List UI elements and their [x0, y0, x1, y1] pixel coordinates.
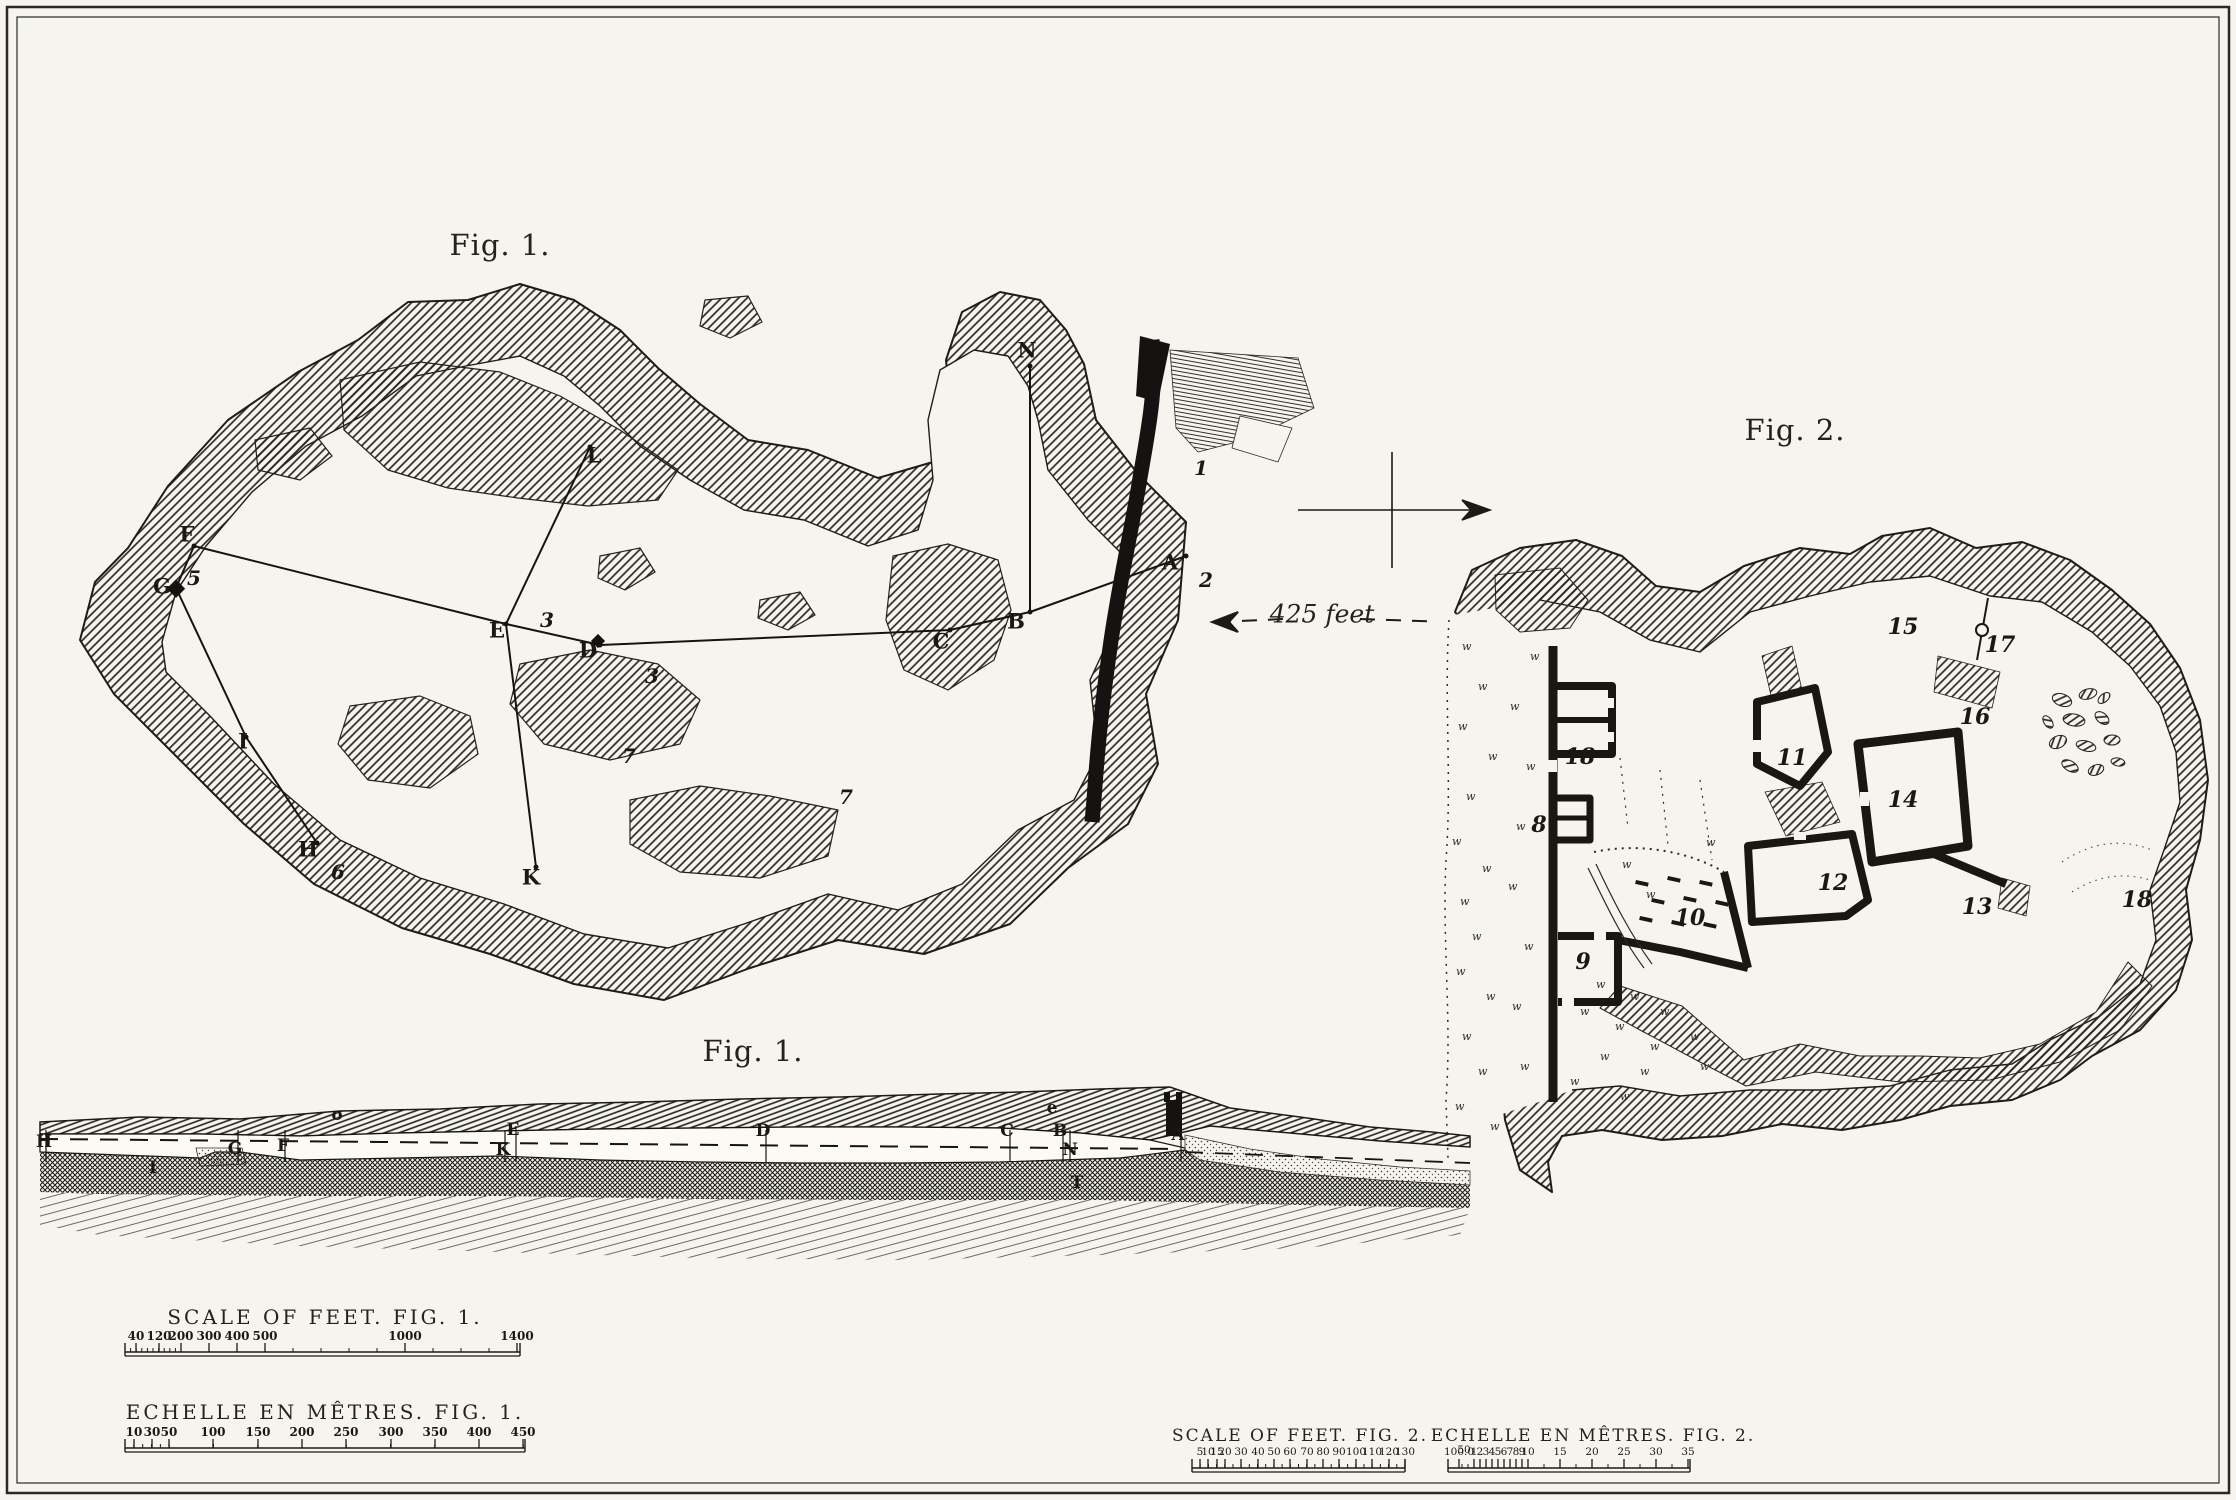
fig1-station-label: B	[1007, 609, 1025, 634]
plate-artwork: wwwwwwwwwwwwwwwwwwwwwwwwwwwwwwwwwwwwww	[0, 0, 2236, 1500]
scale-tick-label: 300	[196, 1329, 221, 1343]
vegetation-tuft-icon: w	[1458, 720, 1468, 733]
vegetation-tuft-icon: w	[1516, 820, 1526, 833]
fig2-plan-art: wwwwwwwwwwwwwwwwwwwwwwwwwwwwwwwwwwwwww	[1436, 528, 2208, 1192]
section-label: F	[277, 1136, 289, 1156]
scale-tick-label: 15	[1553, 1446, 1566, 1458]
vegetation-tuft-icon: w	[1646, 888, 1656, 901]
scale-tick-label: 1000	[388, 1329, 421, 1343]
scale-tick-label: 60	[1283, 1446, 1296, 1458]
fig2-room-number: 12	[1818, 870, 1849, 896]
scale-tick-label: 400	[224, 1329, 249, 1343]
scale-tick-label: 90	[1332, 1446, 1345, 1458]
vegetation-tuft-icon: w	[1640, 1065, 1650, 1078]
section-label: N	[1062, 1140, 1078, 1160]
fig2-room-number: 18	[2122, 887, 2153, 913]
section-label: H	[36, 1132, 52, 1152]
scale-tick-label: 500	[252, 1329, 277, 1343]
vegetation-tuft-icon: w	[1600, 1050, 1610, 1063]
vegetation-tuft-icon: w	[1622, 858, 1632, 871]
vegetation-tuft-icon: w	[1512, 1000, 1522, 1013]
vegetation-tuft-icon: w	[1570, 1075, 1580, 1088]
vegetation-tuft-icon: w	[1466, 790, 1476, 803]
fig1-number-label: 3	[645, 664, 659, 688]
fig2-room-number: 10	[1675, 905, 1706, 931]
scale-tick-label: 200	[289, 1425, 314, 1439]
vegetation-tuft-icon: w	[1510, 700, 1520, 713]
vegetation-tuft-icon: w	[1456, 965, 1466, 978]
fig1-number-label: 6	[331, 860, 345, 884]
scale-tick-label: 10	[126, 1425, 143, 1439]
scale-tick-label: 30	[144, 1425, 161, 1439]
scale-tick-label: 30	[1234, 1446, 1247, 1458]
scale-tick-label: 80	[1316, 1446, 1329, 1458]
scale-tick-label: 50	[161, 1425, 178, 1439]
vegetation-tuft-icon: w	[1455, 1100, 1465, 1113]
vegetation-tuft-icon: w	[1462, 1030, 1472, 1043]
section-label: E	[507, 1120, 520, 1140]
section-label: C	[1000, 1121, 1014, 1141]
fig1-number-label: 7	[622, 744, 636, 768]
scale-tick-label: 35	[1681, 1446, 1694, 1458]
scale-tick-label: 50	[1267, 1446, 1280, 1458]
fig1-station-label: H	[298, 837, 318, 862]
distance-label: 425 feet	[1270, 600, 1375, 629]
fig1-station-label: F	[180, 522, 195, 547]
section-label: G	[228, 1139, 243, 1159]
vegetation-tuft-icon: w	[1580, 1005, 1590, 1018]
scale-tick-label: 450	[510, 1425, 535, 1439]
vegetation-tuft-icon: w	[1482, 862, 1492, 875]
section-label: o	[331, 1105, 342, 1125]
scale-tick-label: 70	[1300, 1446, 1313, 1458]
scale-tick-label: 200	[168, 1329, 193, 1343]
scale-tick-label: 1400	[500, 1329, 533, 1343]
fig1-station-label: K	[522, 865, 540, 890]
vegetation-tuft-icon: w	[1460, 895, 1470, 908]
scale-tick-label: 150	[245, 1425, 270, 1439]
scale-tick-label: 100.0	[1444, 1446, 1474, 1458]
fig1-station-label: I	[238, 729, 248, 754]
scale-metres2-title: ECHELLE EN MÊTRES. FIG. 2.	[1431, 1426, 1755, 1446]
scale-tick-label: 40	[128, 1329, 145, 1343]
fig1-number-label: 5	[187, 566, 201, 590]
scale-tick-label: 250	[333, 1425, 358, 1439]
vegetation-tuft-icon: w	[1620, 1090, 1630, 1103]
vegetation-tuft-icon: w	[1452, 835, 1462, 848]
fig1-wall-head	[1136, 336, 1170, 402]
fig2-caption: Fig. 2.	[1744, 413, 1845, 447]
scale-tick-label: 350	[422, 1425, 447, 1439]
direction-indicator	[1298, 452, 1490, 568]
fig1-number-label: 2	[1199, 568, 1213, 592]
fig1-number-label: 7	[839, 785, 853, 809]
vegetation-tuft-icon: w	[1700, 1060, 1710, 1073]
section-label: T	[1071, 1173, 1084, 1193]
fig1-section-art	[40, 1087, 1470, 1260]
fig2-room-number: 8	[1531, 812, 1546, 838]
fig2-room-number: 9	[1575, 949, 1590, 975]
vegetation-tuft-icon: w	[1615, 1020, 1625, 1033]
vegetation-tuft-icon: w	[1488, 750, 1498, 763]
fig2-room-number: 11	[1777, 745, 1808, 771]
scale-metres1-title: ECHELLE EN MÊTRES. FIG. 1.	[126, 1400, 525, 1424]
fig1-number-label: 1	[1194, 456, 1208, 480]
vegetation-tuft-icon: w	[1462, 640, 1472, 653]
section-label: B	[1053, 1121, 1067, 1141]
vegetation-tuft-icon: w	[1526, 760, 1536, 773]
scale-tick-label: 300	[378, 1425, 403, 1439]
vegetation-tuft-icon: w	[1660, 1005, 1670, 1018]
section-label: K	[496, 1140, 511, 1160]
scale-tick-label: 25	[1617, 1446, 1630, 1458]
scale-tick-label: 30	[1649, 1446, 1662, 1458]
vegetation-tuft-icon: w	[1524, 940, 1534, 953]
vegetation-tuft-icon: w	[1490, 1120, 1500, 1133]
fig1-section-caption: Fig. 1.	[702, 1034, 803, 1068]
fig1-station-label: G	[153, 574, 171, 599]
vegetation-tuft-icon: w	[1478, 1065, 1488, 1078]
vegetation-tuft-icon: w	[1690, 1030, 1700, 1043]
engraved-plate: wwwwwwwwwwwwwwwwwwwwwwwwwwwwwwwwwwwwww F…	[0, 0, 2236, 1500]
scale-tick-label: 40	[1251, 1446, 1264, 1458]
fig2-room-number: 14	[1888, 787, 1919, 813]
fig1-plan-art	[80, 284, 1314, 1000]
fig2-room-number: 13	[1962, 894, 1993, 920]
vegetation-tuft-icon: w	[1706, 836, 1716, 849]
vegetation-tuft-icon: w	[1650, 1040, 1660, 1053]
fig2-room-number: 18	[1565, 744, 1596, 770]
scale-tick-label: 10	[1521, 1446, 1534, 1458]
section-label: A	[1171, 1125, 1184, 1145]
section-label: I	[149, 1158, 157, 1178]
vegetation-tuft-icon: w	[1520, 1060, 1530, 1073]
scale-tick-label: 100	[200, 1425, 225, 1439]
vegetation-tuft-icon: w	[1596, 978, 1606, 991]
scale-tick-label: 20	[1218, 1446, 1231, 1458]
fig1-number-label: 3	[540, 608, 554, 632]
scale-feet1-title: SCALE OF FEET. FIG. 1.	[167, 1305, 482, 1329]
fig1-station-label: N	[1017, 338, 1036, 363]
fig1-plan-caption: Fig. 1.	[449, 228, 550, 262]
fig1-station-label: A	[1162, 550, 1178, 575]
vegetation-tuft-icon: w	[1530, 650, 1540, 663]
fig2-room-number: 16	[1960, 704, 1991, 730]
fig1-station-label: E	[489, 618, 505, 643]
scale-tick-label: 20	[1585, 1446, 1598, 1458]
vegetation-tuft-icon: w	[1508, 880, 1518, 893]
vegetation-tuft-icon: w	[1472, 930, 1482, 943]
fig1-station-label: D	[579, 638, 597, 663]
section-label: e	[1047, 1098, 1058, 1118]
vegetation-tuft-icon: w	[1478, 680, 1488, 693]
scale-feet2-title: SCALE OF FEET. FIG. 2.	[1172, 1426, 1428, 1446]
section-label: D	[756, 1121, 771, 1141]
fig2-room-number: 15	[1888, 614, 1919, 640]
scale-tick-label: 130	[1395, 1446, 1415, 1458]
vegetation-tuft-icon: w	[1630, 990, 1640, 1003]
scale-tick-label: 400	[466, 1425, 491, 1439]
fig2-room-number: 17	[1985, 632, 2016, 658]
fig1-station-label: L	[587, 443, 602, 468]
fig1-station-label: C	[933, 629, 950, 654]
vegetation-tuft-icon: w	[1486, 990, 1496, 1003]
stone-icon	[2104, 735, 2120, 745]
